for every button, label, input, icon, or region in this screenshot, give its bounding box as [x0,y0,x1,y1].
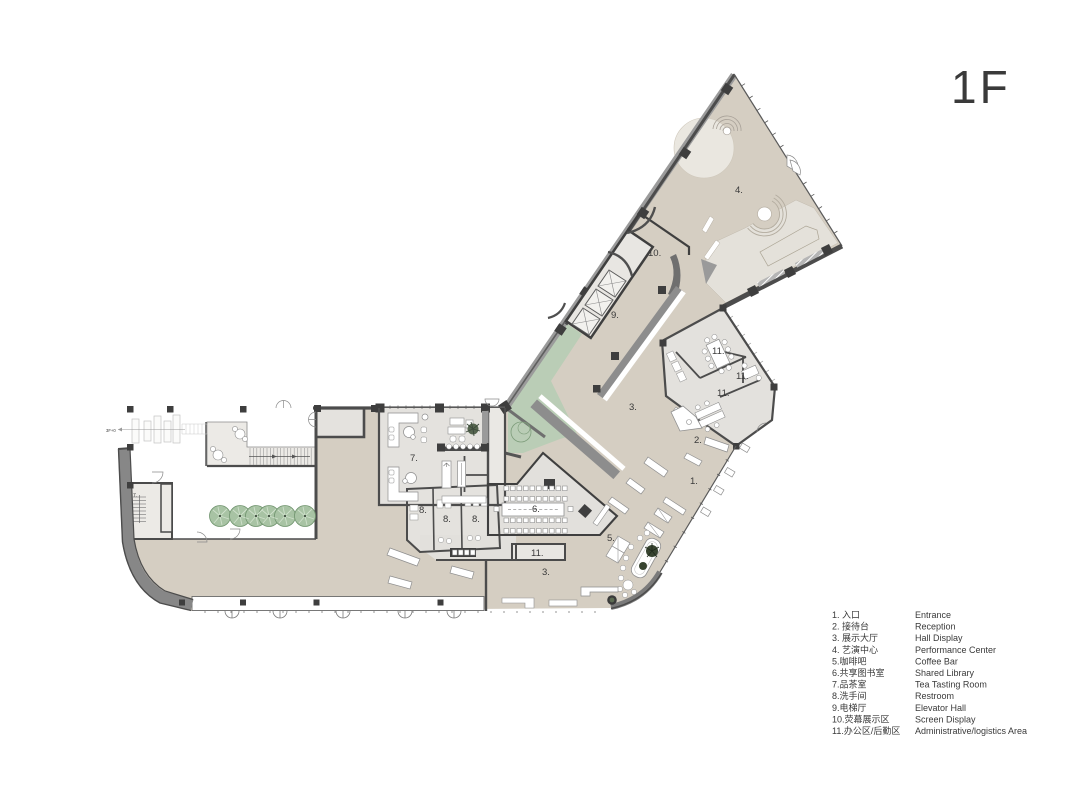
svg-text:Coffee Bar: Coffee Bar [915,656,958,666]
svg-text:1. 入口: 1. 入口 [832,610,860,620]
svg-text:4.: 4. [735,185,743,196]
svg-text:4. 艺演中心: 4. 艺演中心 [832,644,878,655]
svg-text:10.: 10. [648,248,661,259]
svg-text:8.洗手间: 8.洗手间 [832,690,867,701]
svg-text:8.: 8. [443,514,451,525]
svg-text:Screen Display: Screen Display [915,714,976,724]
svg-text:Entrance: Entrance [915,610,951,620]
svg-text:Performance Center: Performance Center [915,645,996,655]
svg-text:11.: 11. [531,548,544,559]
svg-text:8.: 8. [472,514,480,525]
svg-text:9.: 9. [611,310,619,321]
svg-text:5.咖啡吧: 5.咖啡吧 [832,655,867,666]
svg-text:7.: 7. [133,493,137,499]
svg-text:Shared Library: Shared Library [915,668,975,678]
svg-text:11.办公区/后勤区: 11.办公区/后勤区 [832,725,900,736]
svg-text:1.: 1. [690,476,698,487]
svg-text:1F: 1F [951,61,1011,113]
svg-text:7.: 7. [410,453,418,464]
svg-text:Tea Tasting Room: Tea Tasting Room [915,680,987,690]
svg-text:Administrative/logistics Area: Administrative/logistics Area [915,726,1027,736]
svg-text:7.品茶室: 7.品茶室 [832,679,867,690]
svg-text:8.: 8. [419,505,427,516]
svg-text:2.: 2. [694,435,702,446]
svg-text:Restroom: Restroom [915,691,954,701]
svg-text:Reception: Reception [915,622,956,632]
svg-text:5.: 5. [607,533,615,544]
svg-text:11.: 11. [736,371,749,382]
svg-text:Hall Display: Hall Display [915,633,963,643]
svg-text:6.: 6. [532,504,540,515]
svg-text:3.: 3. [542,567,550,578]
svg-text:10.荧幕展示区: 10.荧幕展示区 [832,713,890,724]
svg-text:3. 展示大厅: 3. 展示大厅 [832,632,878,643]
svg-text:2. 接待台: 2. 接待台 [832,621,869,632]
svg-text:3.: 3. [629,402,637,413]
svg-text:11.: 11. [712,346,725,357]
svg-text:11.: 11. [717,388,730,399]
svg-text:3F+0: 3F+0 [106,428,116,433]
svg-text:9.电梯厅: 9.电梯厅 [832,702,867,713]
svg-text:Elevator Hall: Elevator Hall [915,703,966,713]
svg-text:6.共享图书室: 6.共享图书室 [832,667,885,678]
